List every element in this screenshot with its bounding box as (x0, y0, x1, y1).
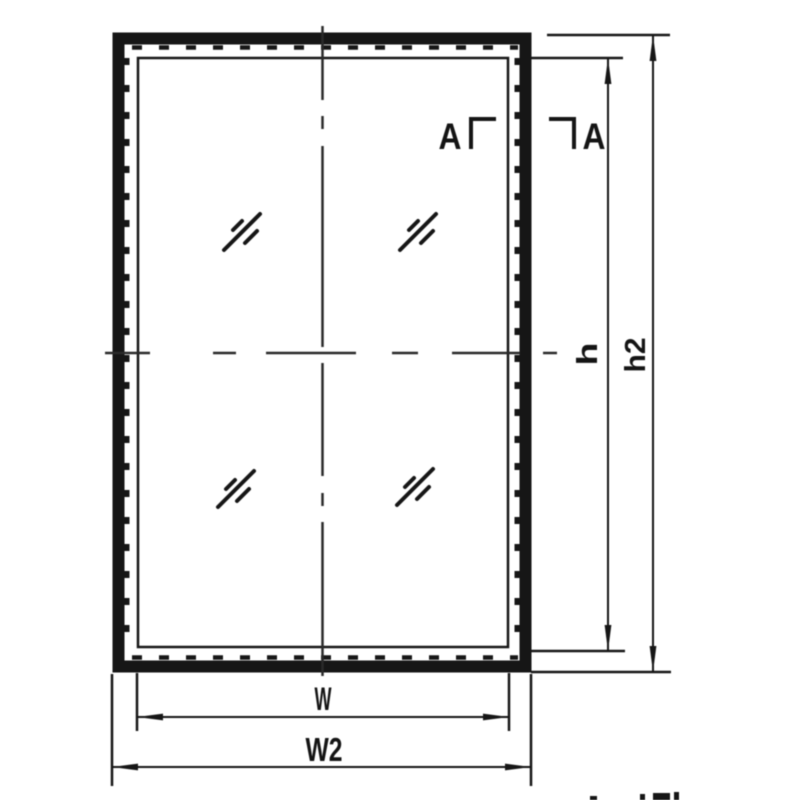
svg-text:W: W (315, 681, 332, 717)
svg-text:A: A (439, 116, 462, 157)
svg-text:W2: W2 (306, 731, 343, 768)
svg-text:A: A (583, 116, 606, 157)
svg-text:h: h (572, 343, 604, 366)
svg-text:h2: h2 (620, 338, 652, 373)
